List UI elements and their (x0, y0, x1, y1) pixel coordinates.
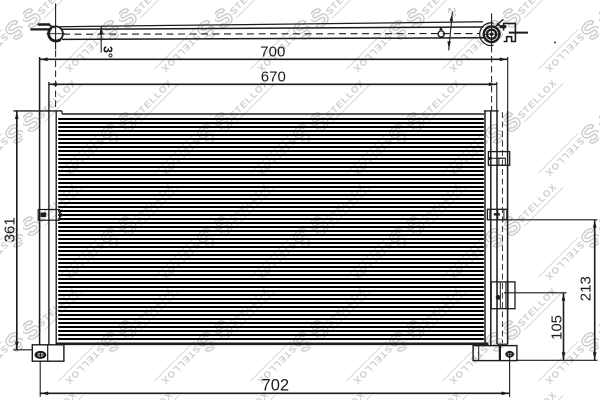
svg-text:670: 670 (261, 68, 286, 85)
svg-text:361: 361 (2, 217, 19, 242)
svg-text:700: 700 (260, 43, 285, 60)
svg-text:213: 213 (578, 276, 595, 301)
svg-text:105: 105 (549, 315, 566, 340)
svg-text:3°: 3° (100, 46, 114, 58)
svg-text:702: 702 (262, 376, 290, 394)
svg-text:2°: 2° (446, 8, 457, 18)
